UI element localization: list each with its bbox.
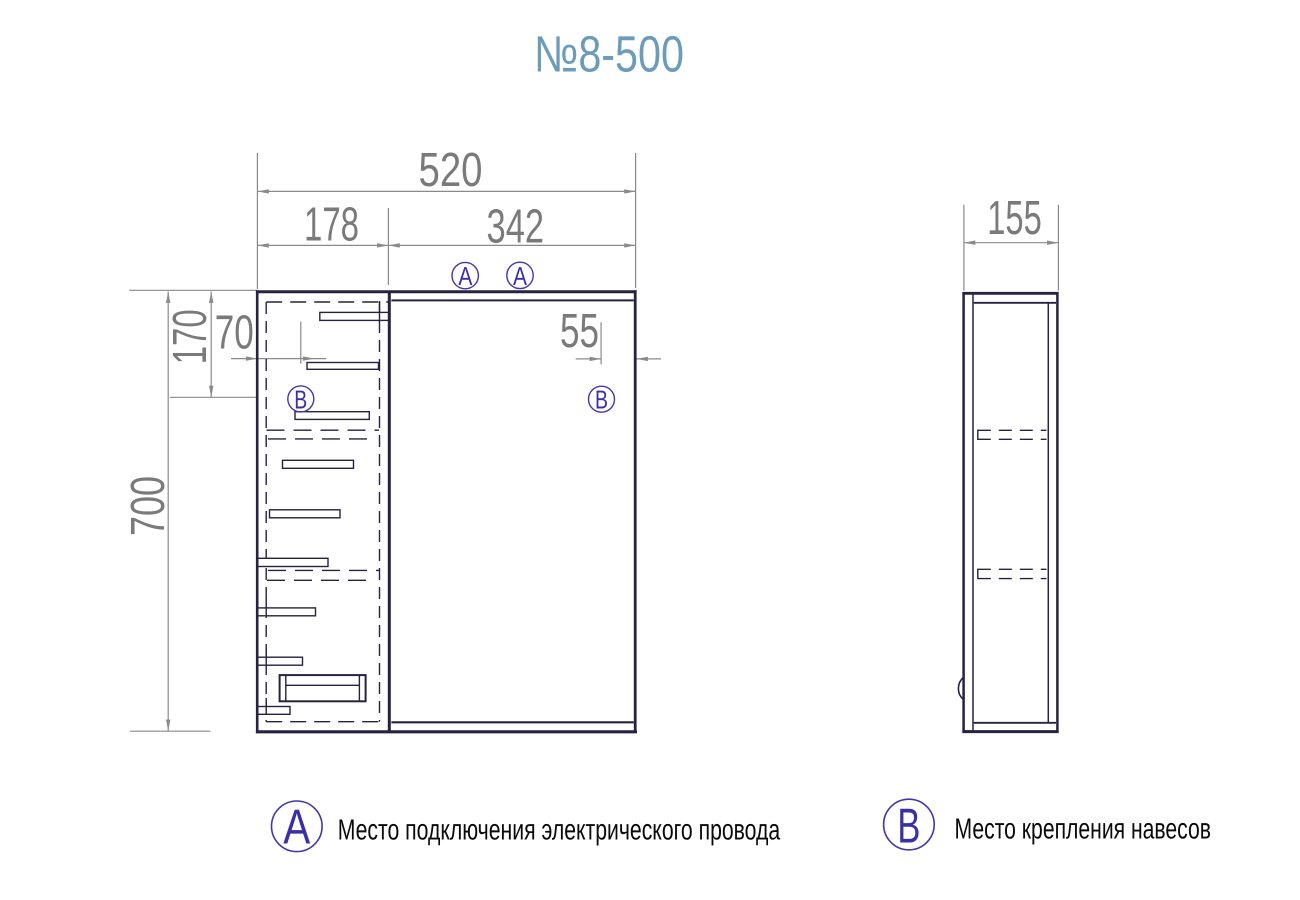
svg-text:342: 342 [487,201,545,254]
svg-text:B: B [294,384,307,414]
svg-text:70: 70 [215,307,254,360]
svg-text:155: 155 [987,192,1042,245]
svg-text:A: A [513,261,528,291]
svg-text:520: 520 [419,144,483,197]
svg-text:Место подключения электрическо: Место подключения электрического провода [338,815,781,847]
svg-text:700: 700 [122,476,175,536]
svg-text:B: B [897,800,920,854]
svg-text:Место крепления навесов: Место крепления навесов [955,814,1212,846]
svg-text:A: A [458,261,473,291]
svg-text:55: 55 [560,305,599,358]
svg-text:B: B [595,385,608,415]
svg-text:A: A [283,801,310,855]
svg-text:178: 178 [304,199,359,252]
svg-text:170: 170 [164,309,217,364]
svg-text:№8-500: №8-500 [534,26,684,83]
